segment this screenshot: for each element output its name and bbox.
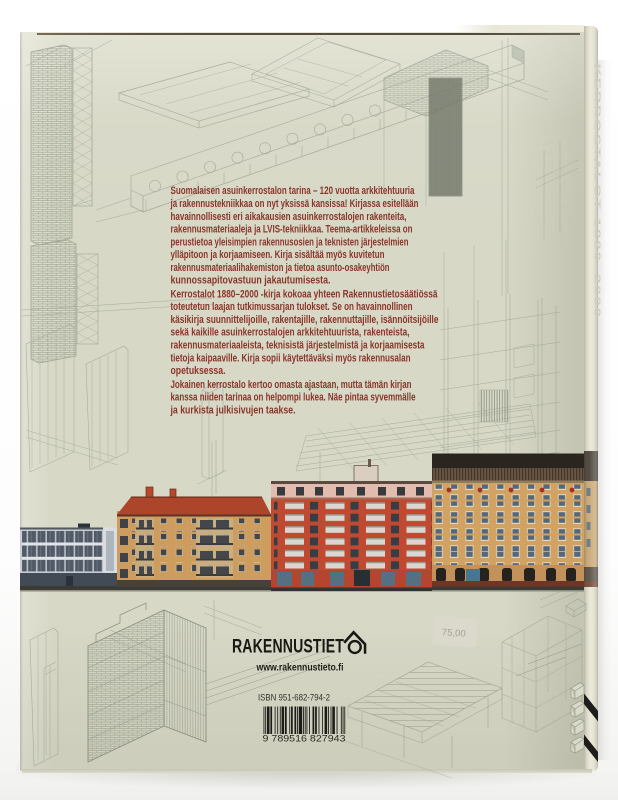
- svg-text:sekä kaikille asuinkerrostaloj: sekä kaikille asuinkerrostalojen arkkite…: [171, 327, 410, 339]
- svg-text:ylläpitoon ja korjaamiseen. Ki: ylläpitoon ja korjaamiseen. Kirja sisält…: [171, 249, 385, 261]
- svg-text:RAKENNUSTIET: RAKENNUSTIET: [232, 636, 344, 658]
- svg-text:www.rakennustieto.fi: www.rakennustieto.fi: [256, 662, 344, 673]
- svg-text:Jokainen kerrostalo kertoo oma: Jokainen kerrostalo kertoo omasta ajasta…: [171, 379, 412, 391]
- svg-text:toteutetun laajan tutkimussarj: toteutetun laajan tutkimussarjan tulokse…: [171, 301, 413, 313]
- svg-text:kanssa niiden tarinaa on helpo: kanssa niiden tarinaa on helpompi lukea.…: [171, 392, 416, 404]
- svg-text:9 789516 827943: 9 789516 827943: [263, 734, 346, 744]
- svg-text:rakennusmateriaaleista, teknis: rakennusmateriaaleista, teknisistä järje…: [171, 340, 426, 352]
- svg-text:Kerrostalot 1880–2000 -kirja k: Kerrostalot 1880–2000 -kirja kokoaa yhte…: [171, 288, 439, 300]
- svg-text:käsikirja suunnittelijoille, r: käsikirja suunnittelijoille, rakentajill…: [171, 314, 439, 326]
- svg-text:ja kurkista julkisivujen taaks: ja kurkista julkisivujen taakse.: [170, 404, 296, 416]
- svg-text:tietoja kaipaaville. Kirja sop: tietoja kaipaaville. Kirja sopii käytett…: [171, 352, 411, 364]
- svg-text:opetuksessa.: opetuksessa.: [171, 365, 226, 377]
- svg-text:KERROSTALOT 1880–2000: KERROSTALOT 1880–2000: [593, 64, 602, 319]
- svg-text:kunnossapitovastuun jakautumis: kunnossapitovastuun jakautumisesta.: [171, 275, 331, 287]
- svg-text:ISBN 951-682-794-2: ISBN 951-682-794-2: [258, 693, 330, 704]
- svg-text:Suomalaisen asuinkerrostalon t: Suomalaisen asuinkerrostalon tarina – 12…: [171, 185, 416, 197]
- svg-text:rakennusmateriaalihakemiston j: rakennusmateriaalihakemiston ja tietoa a…: [171, 262, 390, 274]
- svg-text:75,00: 75,00: [441, 627, 465, 640]
- svg-text:perustietoa yleisimpien rakenn: perustietoa yleisimpien rakennusosien ja…: [171, 236, 409, 248]
- svg-text:ja rakennustekniikkaa on nyt y: ja rakennustekniikkaa on nyt yksissä kan…: [170, 198, 419, 210]
- svg-text:havainnollisesti eri aikakausi: havainnollisesti eri aikakausien asuinke…: [171, 211, 407, 223]
- svg-text:rakennusmateriaaleja ja LVIS-t: rakennusmateriaaleja ja LVIS-tekniikkaa.…: [171, 224, 413, 236]
